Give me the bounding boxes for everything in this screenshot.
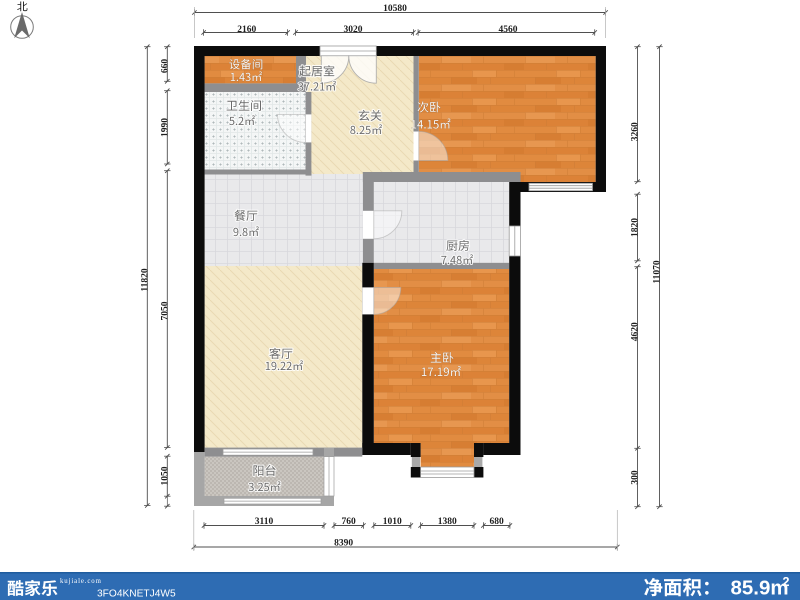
svg-text:660: 660 <box>161 59 171 74</box>
svg-text:1820: 1820 <box>631 218 641 237</box>
svg-text:3020: 3020 <box>344 25 363 35</box>
svg-text:1380: 1380 <box>438 517 457 527</box>
svg-text:300: 300 <box>631 470 641 485</box>
svg-text:11820: 11820 <box>141 268 151 291</box>
svg-text:4560: 4560 <box>499 25 518 35</box>
svg-text:7050: 7050 <box>161 301 171 320</box>
svg-text:85.9m: 85.9m <box>731 577 789 600</box>
svg-text:760: 760 <box>341 517 356 527</box>
svg-text:10580: 10580 <box>383 4 407 14</box>
svg-text:3110: 3110 <box>255 517 274 527</box>
svg-text:kujiale.com: kujiale.com <box>60 578 102 585</box>
svg-text:1050: 1050 <box>161 466 171 485</box>
svg-text:680: 680 <box>489 517 504 527</box>
svg-text:3FO4KNETJ4W5: 3FO4KNETJ4W5 <box>97 589 176 600</box>
svg-text:8390: 8390 <box>334 538 353 548</box>
svg-text:1010: 1010 <box>383 517 402 527</box>
svg-text:3260: 3260 <box>631 122 641 141</box>
svg-text:2160: 2160 <box>237 25 256 35</box>
svg-text:4620: 4620 <box>631 322 641 341</box>
svg-text:11070: 11070 <box>653 260 663 283</box>
svg-text:1990: 1990 <box>161 118 171 137</box>
svg-text:2: 2 <box>783 575 790 589</box>
